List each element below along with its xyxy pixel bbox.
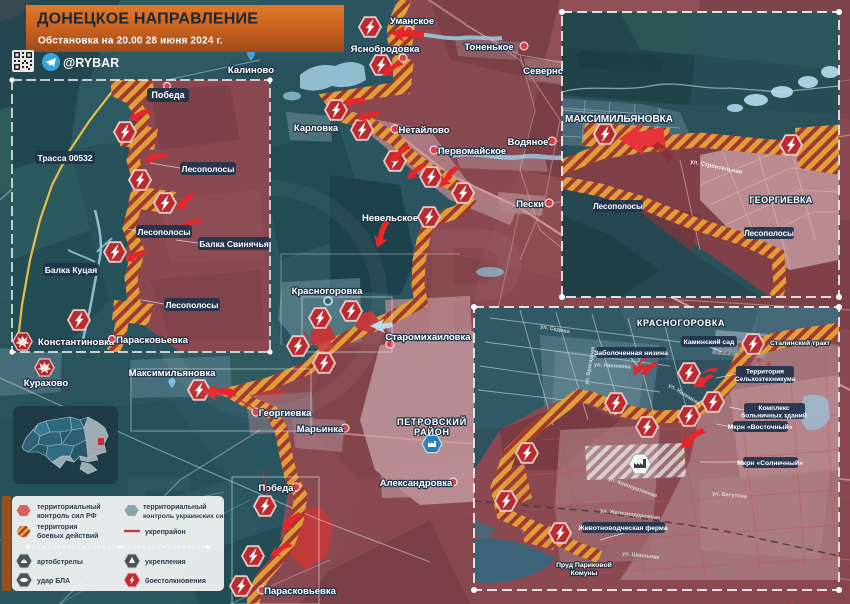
- svg-text:Комуны: Комуны: [571, 570, 598, 577]
- svg-text:Лесополосы: Лесополосы: [182, 164, 235, 174]
- svg-text:Сельхозтехникума: Сельхозтехникума: [735, 376, 796, 383]
- svg-text:ДОНЕЦКОЕ НАПРАВЛЕНИЕ: ДОНЕЦКОЕ НАПРАВЛЕНИЕ: [37, 11, 258, 28]
- svg-text:Лесополосы: Лесополосы: [138, 227, 191, 237]
- svg-text:удар БЛА: удар БЛА: [37, 578, 70, 585]
- svg-text:ГЕОРГИЕВКА: ГЕОРГИЕВКА: [749, 195, 812, 205]
- svg-text:Первомайское: Первомайское: [438, 146, 506, 157]
- svg-text:ПЕТРОВСКИЙ: ПЕТРОВСКИЙ: [397, 416, 467, 427]
- svg-text:Территория: Территория: [746, 369, 784, 376]
- svg-text:МАКСИМИЛЬЯНОВКА: МАКСИМИЛЬЯНОВКА: [565, 114, 673, 125]
- svg-text:Мкрн «Восточный»: Мкрн «Восточный»: [728, 423, 793, 431]
- svg-text:Тоненькое: Тоненькое: [464, 42, 513, 53]
- svg-text:Невельское: Невельское: [362, 213, 418, 224]
- svg-text:Заболоченная низина: Заболоченная низина: [594, 349, 668, 357]
- svg-text:Водяное: Водяное: [508, 137, 549, 148]
- svg-text:Красногоровка: Красногоровка: [292, 286, 364, 297]
- svg-text:боевых действий: боевых действий: [37, 532, 98, 540]
- svg-text:Каминский сад: Каминский сад: [684, 338, 735, 346]
- svg-text:Победа: Победа: [151, 90, 185, 100]
- svg-text:территория: территория: [37, 524, 77, 531]
- svg-text:Марьинка: Марьинка: [297, 424, 344, 435]
- svg-text:Калиново: Калиново: [228, 65, 274, 76]
- svg-text:Карловка: Карловка: [294, 123, 339, 134]
- svg-text:территориальный: территориальный: [37, 503, 101, 511]
- svg-text:контроль сил РФ: контроль сил РФ: [37, 513, 97, 520]
- svg-text:Лесополосы: Лесополосы: [166, 300, 219, 310]
- svg-text:Трасса 00532: Трасса 00532: [37, 153, 92, 163]
- svg-text:Сталинский тракт: Сталинский тракт: [770, 339, 831, 347]
- svg-text:Балка Куцая: Балка Куцая: [45, 265, 98, 275]
- svg-text:территориальный: территориальный: [143, 503, 207, 511]
- svg-text:Победа: Победа: [258, 483, 294, 494]
- svg-text:Парасковьевка: Парасковьевка: [116, 335, 188, 346]
- svg-text:Животноводческая ферма: Животноводческая ферма: [577, 525, 668, 532]
- svg-text:Мкрн «Солнечный»: Мкрн «Солнечный»: [737, 459, 803, 467]
- svg-text:укрепрайон: укрепрайон: [145, 528, 186, 536]
- svg-text:Комплекс: Комплекс: [758, 405, 789, 412]
- svg-text:Пруд Париковой: Пруд Париковой: [556, 561, 612, 569]
- svg-text:Константиновка: Константиновка: [38, 337, 115, 348]
- svg-text:Александровка: Александровка: [380, 478, 453, 489]
- svg-text:Лесополосы: Лесополосы: [593, 202, 643, 211]
- svg-text:Парасковьевка: Парасковьевка: [264, 586, 336, 597]
- svg-text:Лесополосы: Лесополосы: [744, 229, 794, 238]
- svg-text:контроль украинских сил: контроль украинских сил: [143, 513, 228, 520]
- svg-text:больничных зданий: больничных зданий: [741, 412, 806, 420]
- svg-text:Балка Свинячья: Балка Свинячья: [199, 239, 268, 249]
- svg-text:@RYBAR: @RYBAR: [63, 56, 119, 70]
- svg-text:артобстрелы: артобстрелы: [37, 558, 83, 566]
- svg-text:Курахово: Курахово: [24, 378, 69, 389]
- svg-text:Обстановка на 20.00 28 июня 20: Обстановка на 20.00 28 июня 2024 г.: [38, 35, 223, 47]
- svg-text:Уманское: Уманское: [390, 16, 434, 27]
- svg-text:Яснобродовка: Яснобродовка: [351, 44, 420, 55]
- svg-text:КРАСНОГОРОВКА: КРАСНОГОРОВКА: [637, 318, 725, 328]
- svg-text:укрепления: укрепления: [145, 559, 186, 566]
- svg-text:боестолкновения: боестолкновения: [145, 577, 206, 585]
- svg-text:Нетайлово: Нетайлово: [398, 125, 449, 136]
